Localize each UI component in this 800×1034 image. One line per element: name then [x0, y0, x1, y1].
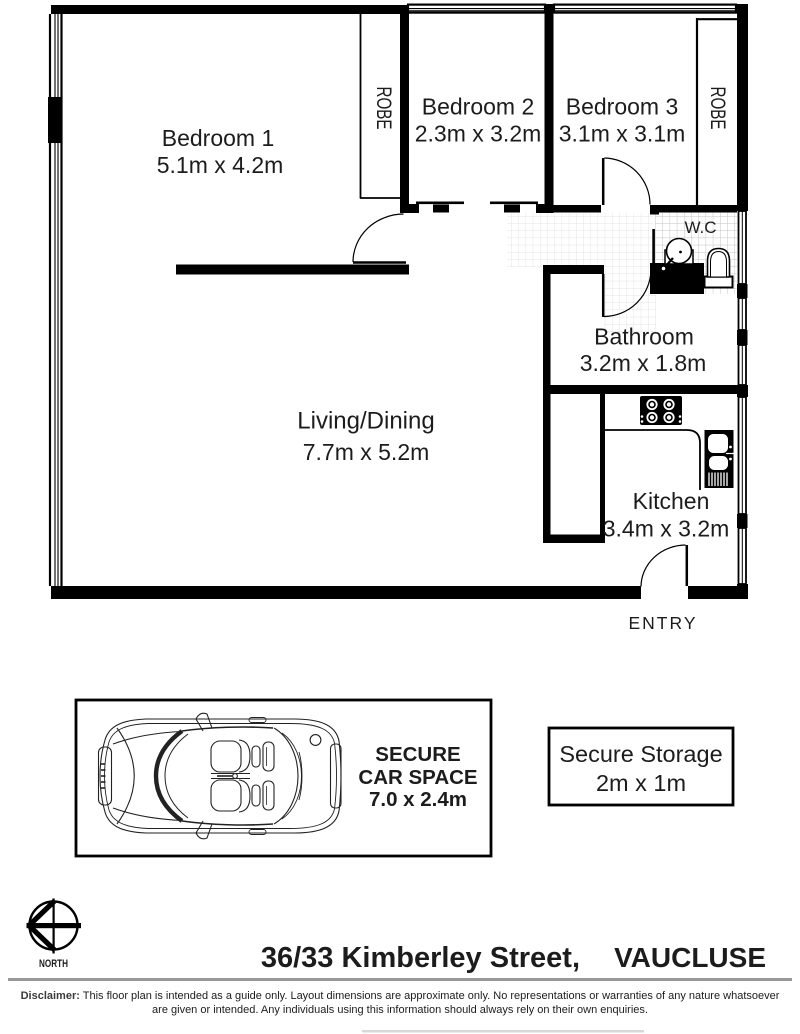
- svg-text:Bathroom: Bathroom: [594, 324, 694, 350]
- svg-text:ENTRY: ENTRY: [629, 613, 698, 633]
- svg-text:Kitchen: Kitchen: [633, 488, 710, 514]
- svg-text:7.0 x 2.4m: 7.0 x 2.4m: [369, 788, 467, 811]
- svg-text:ROBE: ROBE: [372, 87, 396, 130]
- svg-text:ROBE: ROBE: [706, 87, 730, 130]
- svg-text:Bedroom 1: Bedroom 1: [162, 125, 275, 151]
- svg-text:W.C: W.C: [684, 218, 716, 237]
- svg-text:2m x 1m: 2m x 1m: [596, 770, 686, 796]
- svg-text:NORTH: NORTH: [39, 958, 68, 970]
- svg-text:7.7m x 5.2m: 7.7m x 5.2m: [303, 439, 430, 465]
- svg-text:3.4m x 3.2m: 3.4m x 3.2m: [603, 516, 730, 542]
- svg-text:36/33 Kimberley Street,: 36/33 Kimberley Street,: [261, 942, 580, 974]
- svg-text:Bedroom 3: Bedroom 3: [566, 94, 679, 120]
- svg-text:are given or intended. Any in: are given or intended. Any individuals u…: [152, 1004, 648, 1016]
- svg-text:Disclaimer: This floor plan i: Disclaimer: This floor plan is intended …: [21, 990, 780, 1002]
- svg-text:Living/Dining: Living/Dining: [297, 408, 434, 435]
- svg-text:3.1m x 3.1m: 3.1m x 3.1m: [559, 121, 686, 147]
- svg-text:2.3m x 3.2m: 2.3m x 3.2m: [415, 121, 542, 147]
- svg-text:3.2m x 1.8m: 3.2m x 1.8m: [580, 350, 707, 376]
- svg-text:5.1m x 4.2m: 5.1m x 4.2m: [157, 152, 284, 178]
- svg-text:Secure Storage: Secure Storage: [559, 741, 722, 767]
- svg-text:CAR SPACE: CAR SPACE: [358, 766, 477, 789]
- svg-text:VAUCLUSE: VAUCLUSE: [614, 942, 766, 973]
- svg-text:SECURE: SECURE: [375, 743, 460, 766]
- svg-text:Bedroom 2: Bedroom 2: [422, 94, 535, 120]
